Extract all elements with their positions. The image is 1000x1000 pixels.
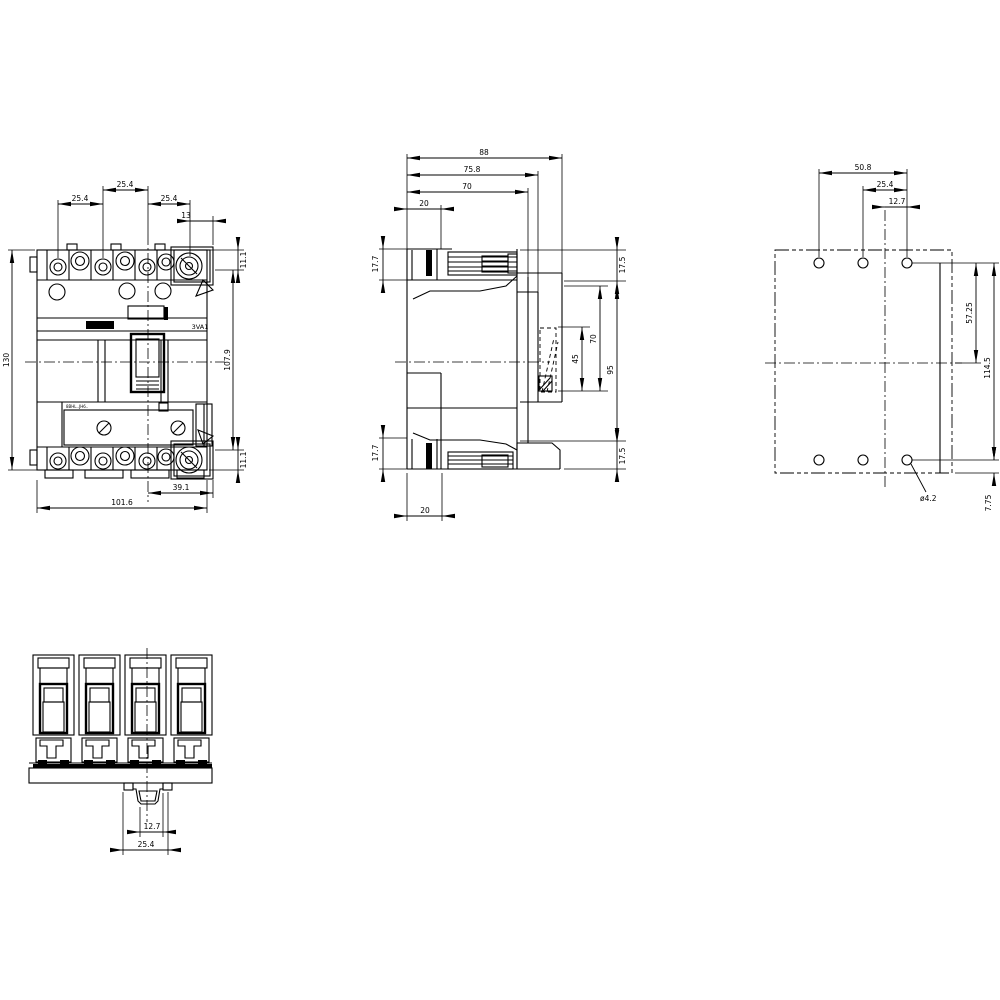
front-view: 3VA1 8BHL..JH6.. [2,180,248,513]
dim-rear-edge-offset: 7.75 [955,447,999,511]
dim-text: 50.8 [855,163,872,172]
dim-text: 17.7 [371,444,380,461]
dim-rear-span-v: 114.5 [912,263,999,460]
bottom-base-and-clip [29,763,212,804]
brand-logo-block [86,321,114,329]
side-view: 88 75.8 70 20 17.7 [371,148,627,521]
front-top-terminals [47,250,174,280]
side-bottom-terminal [413,433,560,469]
dim-text: 12.7 [144,822,161,831]
dim-side-cap-bottom: 17.5 [564,430,627,482]
dim-text: 45 [571,354,580,364]
dim-text: 130 [2,353,11,368]
dim-text: 25.4 [161,194,178,203]
dim-text: 12.7 [889,197,906,206]
dim-text: 114.5 [983,357,992,379]
rear-outline [775,250,952,473]
dim-text: 70 [462,182,472,191]
dim-text: 70 [589,334,598,344]
dim-text: 95 [606,365,615,375]
dim-rear-half-v: 57.25 [912,263,999,363]
dim-text: 88 [479,148,489,157]
dim-text: 17.5 [618,447,627,464]
dim-side-term-top: 17.7 [371,236,407,293]
side-handle-bezel [517,273,562,443]
dim-text: 11.1 [239,451,248,468]
dim-front-inner-height: 107.9 [223,270,233,450]
dim-text: 25.4 [117,180,134,189]
dim-text: 17.5 [618,256,627,273]
technical-drawing-canvas: 3VA1 8BHL..JH6.. [0,0,1000,1000]
dim-bottom-inner: 12.7 [127,793,176,837]
dim-side-rail-bottom: 20 [394,473,455,521]
dim-side-rail-top: 20 [394,199,454,249]
dim-text: 20 [419,199,429,208]
dim-side-span45: 45 [558,327,590,391]
dim-text: 7.75 [984,494,993,511]
callout-hole-diameter: ø4.2 [911,464,937,503]
front-bottom-terminals [47,447,174,470]
dim-side-cap-top: 17.5 [520,237,627,294]
dim-front-pitch-top: 25.4 [103,180,148,258]
dim-text: 25.4 [877,180,894,189]
dim-text: 107.9 [223,349,232,371]
rear-mounting-holes [814,258,912,465]
dim-text: 11.1 [239,251,248,268]
rear-view: 50.8 25.4 12.7 57.25 114.5 7.75 [765,163,999,511]
dim-front-rotary-offset: 13 [177,211,226,245]
bottom-modules [33,655,212,764]
product-label: 3VA1 [192,323,209,331]
dim-text: 101.6 [111,498,133,507]
hole-diameter-label: ø4.2 [920,494,937,503]
dim-text: 13 [181,211,191,220]
dim-side-term-bottom: 17.7 [371,425,407,482]
dim-front-step-top: 11.1 [209,237,248,283]
dim-text: 25.4 [72,194,89,203]
front-accessory-section: 8BHL..JH6.. [62,402,212,447]
dim-text: 20 [420,506,430,515]
dim-text: 75.8 [464,165,481,174]
front-toggle-handle [131,334,164,392]
dim-front-pitch-left: 25.4 [58,194,103,258]
dim-front-step-bottom: 11.1 [209,437,248,483]
dim-side-span70: 70 [558,286,608,391]
bottom-view: 12.7 25.4 [29,648,212,855]
dim-front-lower-width: 39.1 [148,480,213,498]
dimensional-drawing: 3VA1 8BHL..JH6.. [0,0,1000,1000]
accessory-code-label: 8BHL..JH6.. [66,404,88,409]
dim-text: 25.4 [138,840,155,849]
dim-text: 17.7 [371,255,380,272]
dim-text: 39.1 [173,483,190,492]
dim-side-body-depth: 70 [407,182,528,277]
dim-text: 57.25 [965,302,974,324]
dim-rear-half-h: 12.7 [872,197,920,207]
